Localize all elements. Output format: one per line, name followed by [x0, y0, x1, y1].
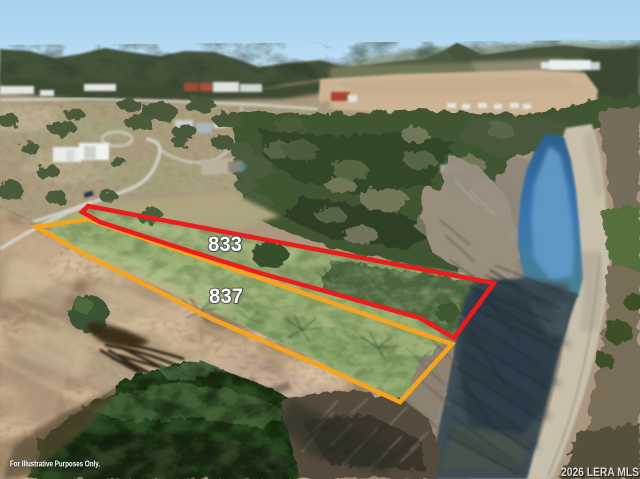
svg-text:833: 833: [208, 233, 242, 256]
svg-text:837: 837: [209, 285, 243, 308]
svg-text:For Illustrative Purposes Only: For Illustrative Purposes Only.: [10, 459, 100, 469]
svg-text:2026 LERA MLS: 2026 LERA MLS: [561, 467, 639, 479]
